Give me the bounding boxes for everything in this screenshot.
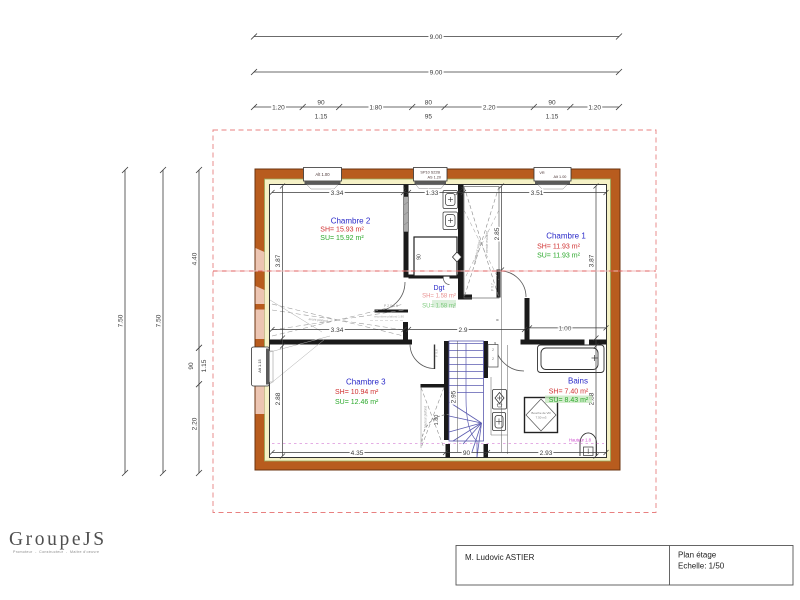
svg-text:90: 90 [548, 100, 556, 107]
svg-text:2.20: 2.20 [483, 105, 496, 112]
svg-text:retombee plafond 1.80: retombee plafond 1.80 [374, 315, 404, 319]
svg-text:3.87: 3.87 [589, 254, 596, 267]
svg-text:Alt 1.15: Alt 1.15 [257, 358, 262, 372]
svg-text:SU= 1.58 m²: SU= 1.58 m² [422, 304, 456, 310]
svg-text:Plan étage: Plan étage [678, 551, 717, 560]
svg-text:2.95: 2.95 [451, 390, 458, 403]
svg-text:SH= 10.94 m²: SH= 10.94 m² [335, 389, 379, 396]
svg-text:1.80: 1.80 [434, 415, 440, 426]
svg-text:SU= 8.43 m²: SU= 8.43 m² [549, 397, 589, 404]
svg-text:2: 2 [492, 357, 494, 361]
svg-text:9.00: 9.00 [430, 34, 443, 41]
svg-text:2.88: 2.88 [275, 392, 282, 405]
svg-text:P 0.7: P 0.7 [491, 283, 495, 291]
svg-text:M. Ludovic ASTIER: M. Ludovic ASTIER [465, 553, 535, 562]
svg-text:2.20: 2.20 [192, 417, 199, 430]
svg-text:3.34: 3.34 [331, 327, 344, 334]
svg-text:90: 90 [317, 100, 325, 107]
svg-text:Chambre 3: Chambre 3 [346, 378, 386, 387]
svg-text:SH= 11.93 m²: SH= 11.93 m² [537, 244, 581, 251]
svg-text:2: 2 [492, 348, 494, 352]
svg-text:8: 8 [496, 319, 500, 321]
svg-text:1.00: 1.00 [559, 325, 572, 332]
svg-text:Dgt: Dgt [434, 285, 445, 292]
svg-text:1.20: 1.20 [588, 105, 601, 112]
svg-text:SU= 15.92 m²: SU= 15.92 m² [320, 235, 364, 242]
svg-text:3.34: 3.34 [331, 190, 344, 197]
svg-text:GroupeJS: GroupeJS [9, 529, 107, 550]
svg-text:1.15: 1.15 [546, 114, 559, 121]
svg-text:4.40: 4.40 [192, 252, 199, 265]
svg-text:7.50 m3: 7.50 m3 [536, 416, 547, 420]
svg-text:SP10 S22B: SP10 S22B [420, 171, 440, 175]
svg-text:90: 90 [463, 450, 471, 457]
svg-text:7: 7 [403, 187, 405, 191]
svg-text:Hauteur 1.8: Hauteur 1.8 [569, 438, 592, 443]
svg-text:80: 80 [425, 100, 433, 107]
svg-text:Bains: Bains [568, 377, 588, 386]
svg-text:3.51: 3.51 [531, 190, 544, 197]
svg-text:Promoteur - Constructeur -: Promoteur - Constructeur - Maitre d’oeuv… [13, 550, 99, 554]
svg-text:7.50: 7.50 [118, 314, 125, 327]
svg-text:7.50: 7.50 [156, 314, 163, 327]
svg-text:Alt 1.00: Alt 1.00 [315, 172, 330, 177]
svg-text:Echelle: 1/50: Echelle: 1/50 [678, 562, 725, 571]
svg-text:1.33: 1.33 [426, 190, 439, 197]
svg-text:tremie escalier: tremie escalier [485, 230, 489, 253]
svg-text:7: 7 [461, 187, 463, 191]
svg-text:SU= 11.93 m²: SU= 11.93 m² [537, 253, 581, 260]
svg-text:2.85: 2.85 [494, 227, 501, 240]
svg-text:VR: VR [539, 171, 545, 175]
svg-text:AS 1.20: AS 1.20 [427, 176, 441, 180]
svg-text:95: 95 [425, 114, 433, 121]
svg-text:90: 90 [188, 362, 195, 370]
svg-text:SH= 15.93 m²: SH= 15.93 m² [320, 227, 364, 234]
svg-text:3.87: 3.87 [275, 254, 282, 267]
svg-text:9.00: 9.00 [430, 70, 443, 77]
svg-text:Alt 1.00: Alt 1.00 [554, 175, 567, 179]
svg-text:Chambre 1: Chambre 1 [546, 232, 586, 241]
svg-text:Bouche de VR: Bouche de VR [531, 411, 551, 415]
svg-text:1.15: 1.15 [315, 114, 328, 121]
svg-text:2.9: 2.9 [458, 327, 467, 334]
svg-text:SH= 1.58 m²: SH= 1.58 m² [422, 294, 456, 300]
svg-text:SU= 12.46 m²: SU= 12.46 m² [335, 399, 379, 406]
svg-text:1.80: 1.80 [369, 105, 382, 112]
svg-text:4.35: 4.35 [351, 450, 364, 457]
svg-text:SH= 7.40 m²: SH= 7.40 m² [549, 389, 589, 396]
svg-text:90: 90 [417, 254, 423, 260]
svg-text:Chambre 2: Chambre 2 [331, 217, 371, 226]
svg-text:2.93: 2.93 [540, 450, 553, 457]
svg-text:hauteur plafond: hauteur plafond [424, 406, 428, 428]
svg-text:1.15: 1.15 [201, 359, 208, 372]
svg-text:P 0.8: P 0.8 [435, 349, 439, 357]
svg-text:1.20: 1.20 [272, 105, 285, 112]
